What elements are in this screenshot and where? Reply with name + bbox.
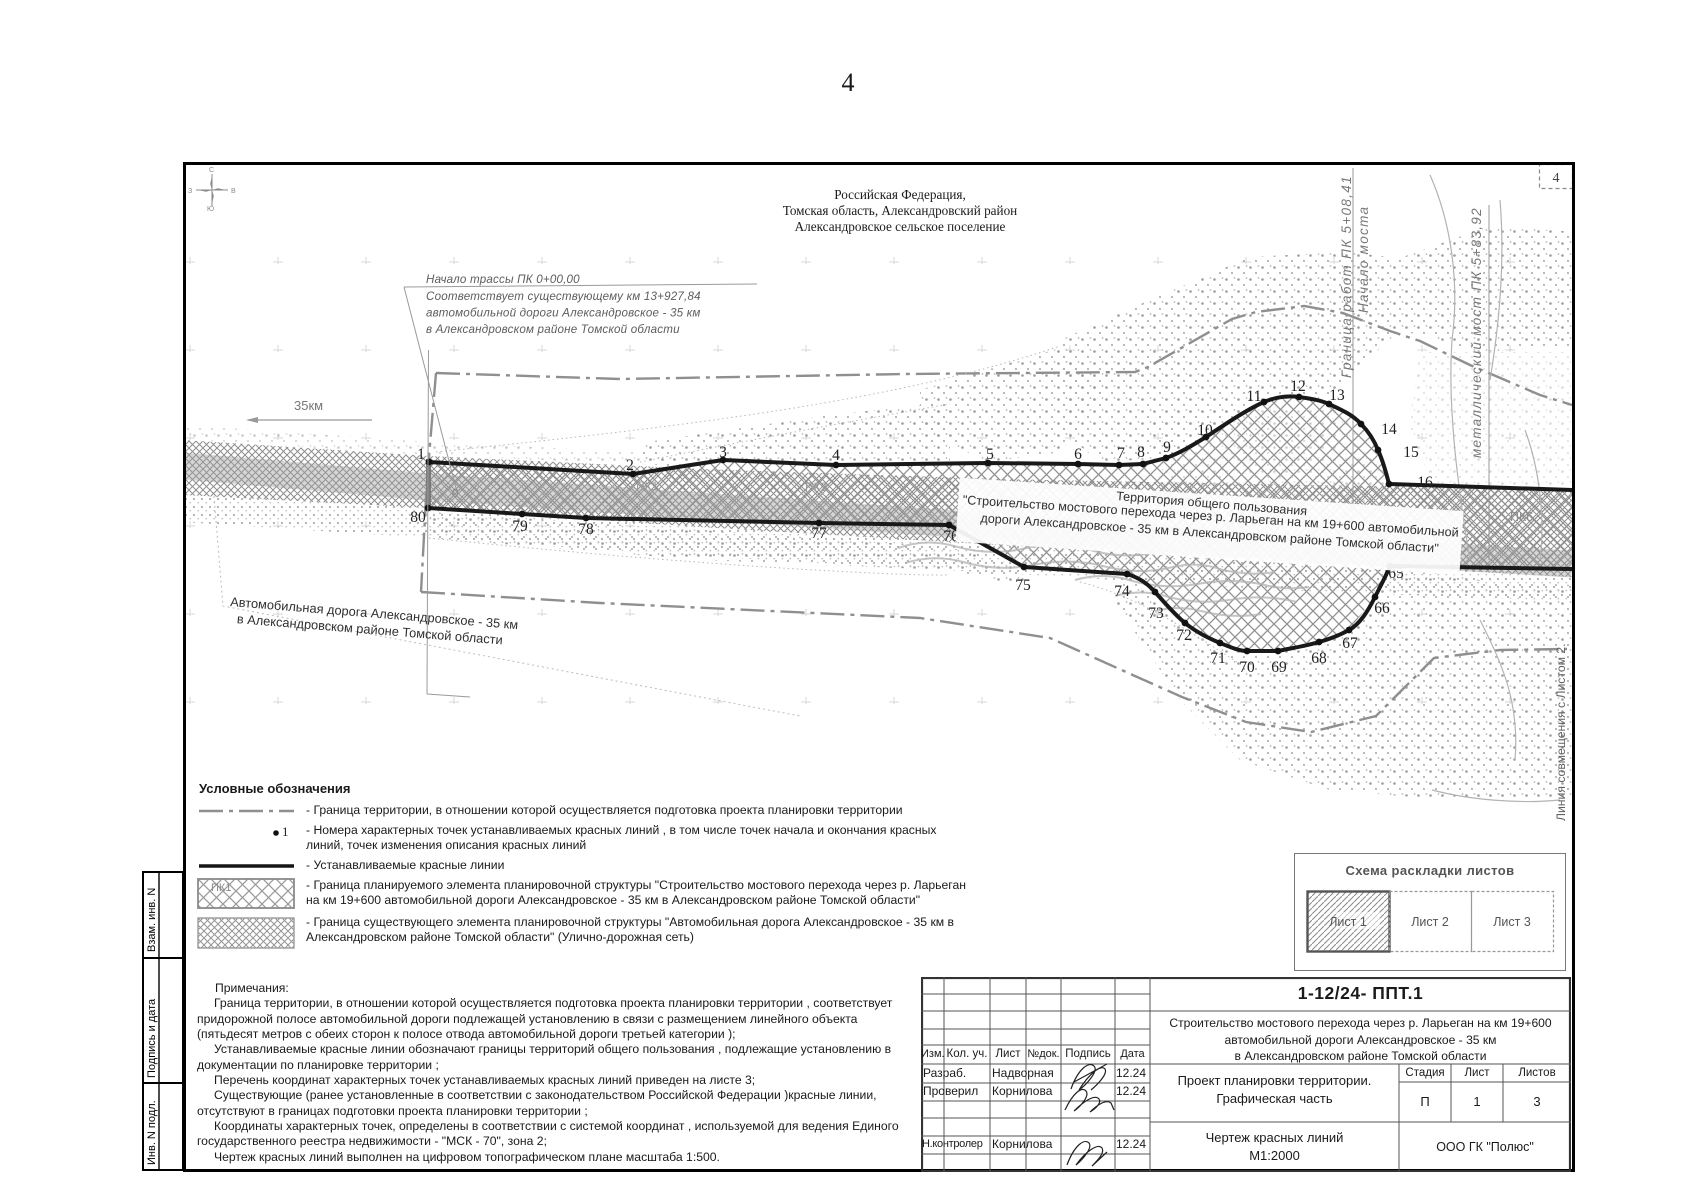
- svg-text:67: 67: [1342, 635, 1358, 652]
- svg-text:Инв. N подл.: Инв. N подл.: [146, 1100, 158, 1165]
- svg-text:1: 1: [417, 446, 425, 463]
- svg-text:С: С: [209, 167, 214, 174]
- svg-text:12: 12: [1290, 378, 1306, 395]
- svg-text:11: 11: [1247, 388, 1262, 405]
- svg-text:74: 74: [1114, 583, 1130, 600]
- svg-text:ПК6: ПК6: [1510, 510, 1533, 524]
- svg-text:16: 16: [1417, 474, 1433, 491]
- svg-text:68: 68: [1311, 650, 1327, 667]
- svg-text:2: 2: [626, 457, 634, 474]
- svg-text:13: 13: [1329, 387, 1345, 404]
- svg-text:ПК1: ПК1: [636, 479, 659, 493]
- svg-text:14: 14: [1381, 421, 1397, 438]
- svg-text:15: 15: [1403, 444, 1419, 461]
- svg-text:5: 5: [986, 446, 994, 463]
- svg-text:в Александровском районе Томск: в Александровском районе Томской области: [426, 323, 680, 336]
- svg-text:7: 7: [1117, 445, 1125, 462]
- svg-text:0: 0: [452, 486, 459, 500]
- svg-text:69: 69: [1271, 659, 1287, 676]
- svg-text:Ю: Ю: [207, 206, 214, 213]
- svg-text:3: 3: [719, 444, 727, 461]
- svg-text:Лист 1: Лист 1: [1329, 915, 1367, 929]
- svg-text:Подпись и дата: Подпись и дата: [146, 998, 158, 1078]
- svg-text:10: 10: [1197, 422, 1213, 439]
- svg-text:металлический мост ПК 5+83,92: металлический мост ПК 5+83,92: [1469, 207, 1484, 458]
- svg-text:9: 9: [1163, 439, 1171, 456]
- svg-text:Начало моста: Начало моста: [1356, 206, 1371, 313]
- svg-text:Соответствует существующему км: Соответствует существующему км 13+927,84: [426, 290, 701, 303]
- svg-text:Лист 2: Лист 2: [1411, 915, 1449, 929]
- svg-text:77: 77: [811, 525, 827, 542]
- svg-text:4: 4: [1553, 171, 1560, 186]
- svg-text:В: В: [231, 188, 236, 195]
- svg-text:1: 1: [282, 825, 289, 839]
- svg-text:4: 4: [832, 447, 840, 464]
- svg-text:ПК1: ПК1: [211, 882, 231, 894]
- svg-text:Линия совмещения с Листом 2.: Линия совмещения с Листом 2.: [1554, 643, 1568, 821]
- svg-text:автомобильной дороги Александр: автомобильной дороги Александровское - 3…: [426, 307, 701, 320]
- svg-text:Взам. инв. N: Взам. инв. N: [146, 888, 158, 952]
- svg-text:Лист 3: Лист 3: [1493, 915, 1531, 929]
- svg-text:8: 8: [1137, 444, 1145, 461]
- svg-text:66: 66: [1374, 600, 1390, 617]
- svg-text:Граница работ ПК 5+08,41: Граница работ ПК 5+08,41: [1339, 175, 1354, 378]
- svg-text:78: 78: [578, 521, 594, 538]
- svg-text:72: 72: [1176, 627, 1192, 644]
- svg-text:Начало трассы ПК 0+00,00: Начало трассы ПК 0+00,00: [426, 273, 580, 286]
- svg-text:35км: 35км: [294, 398, 323, 413]
- svg-text:80: 80: [410, 509, 426, 526]
- svg-text:6: 6: [1074, 446, 1082, 463]
- svg-text:70: 70: [1239, 659, 1255, 676]
- svg-text:79: 79: [512, 518, 528, 535]
- svg-text:75: 75: [1015, 577, 1031, 594]
- svg-text:ПК2: ПК2: [805, 480, 828, 494]
- svg-text:71: 71: [1210, 650, 1226, 667]
- svg-text:73: 73: [1148, 605, 1164, 622]
